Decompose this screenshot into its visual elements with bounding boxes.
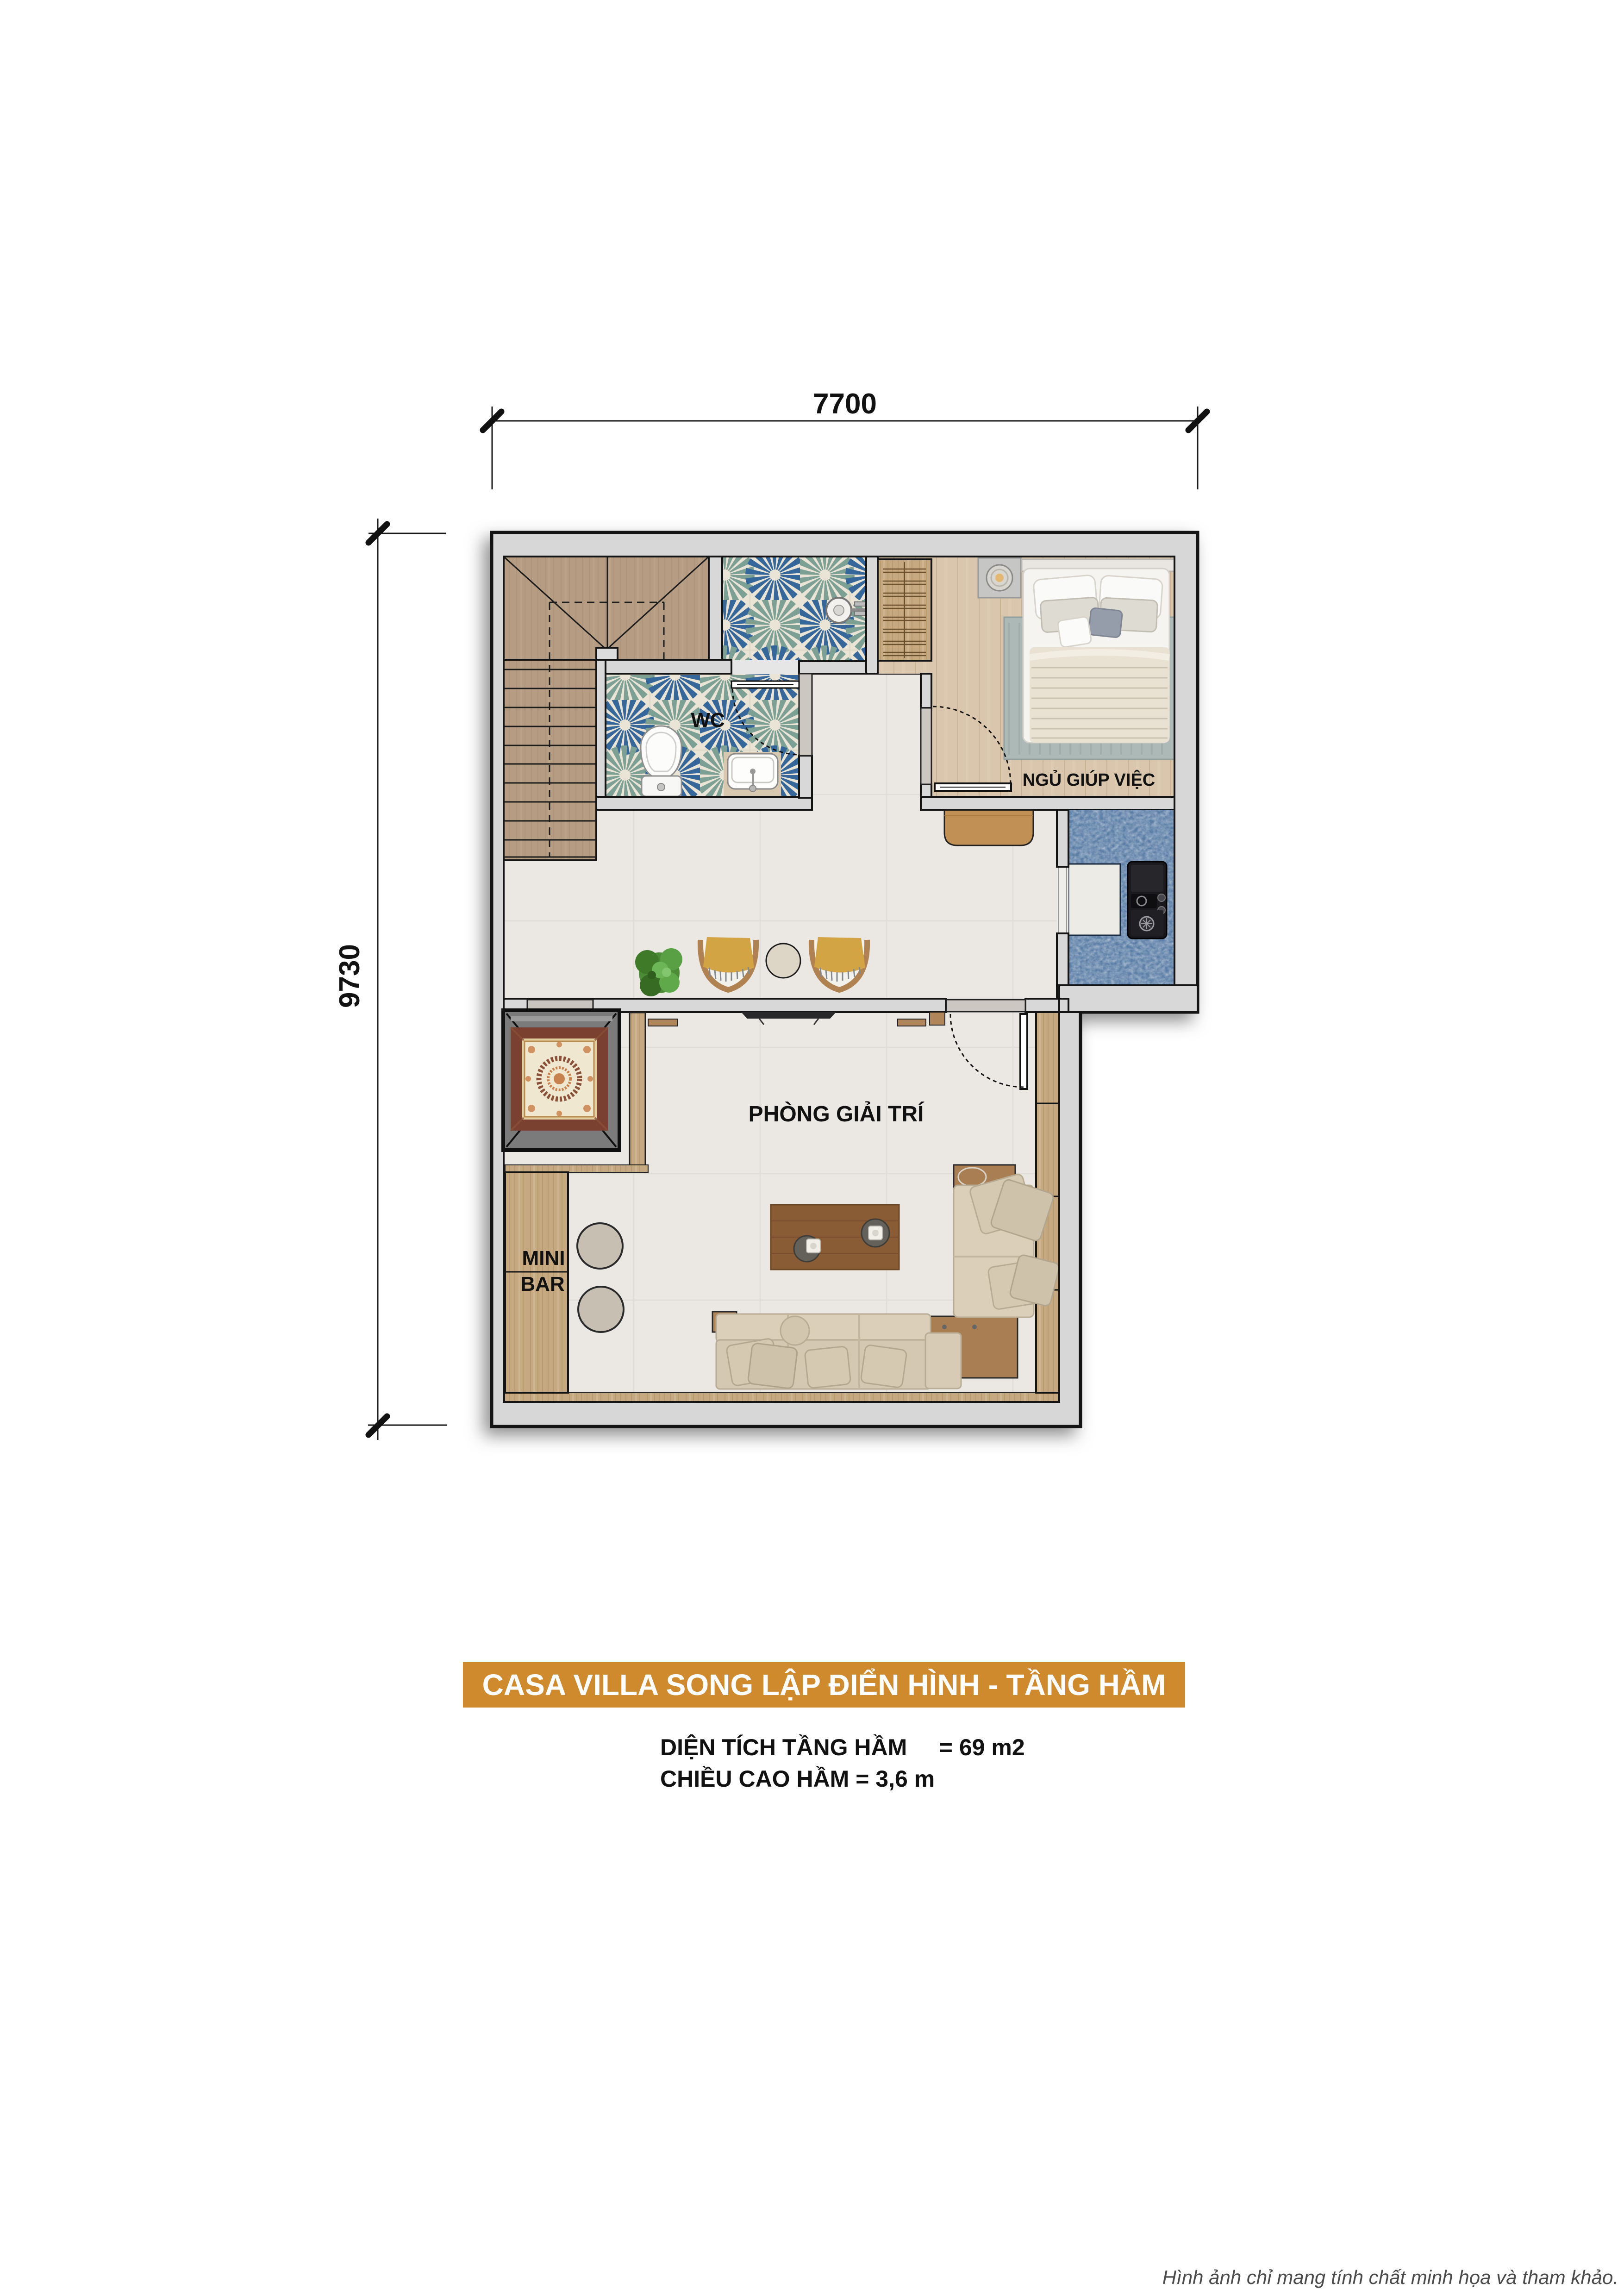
svg-text:PHÒNG GIẢI TRÍ: PHÒNG GIẢI TRÍ	[749, 1101, 924, 1126]
svg-text:BAR: BAR	[520, 1273, 564, 1295]
svg-text:7700: 7700	[813, 388, 877, 420]
svg-text:NGỦ GIÚP VIỆC: NGỦ GIÚP VIỆC	[1023, 770, 1155, 790]
svg-text:9730: 9730	[334, 944, 366, 1008]
svg-text:WC: WC	[691, 709, 725, 732]
svg-text:MINI: MINI	[522, 1247, 565, 1270]
